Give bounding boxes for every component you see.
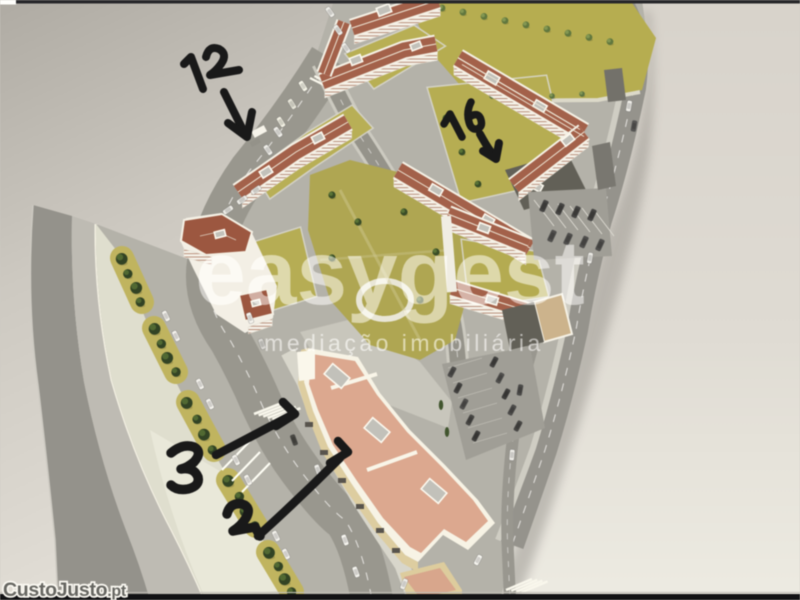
- svg-text:CustoJusto.pt: CustoJusto.pt: [3, 579, 127, 600]
- svg-text:mediação imobiliária: mediação imobiliária: [264, 330, 544, 356]
- svg-text:easygest: easygest: [195, 223, 585, 324]
